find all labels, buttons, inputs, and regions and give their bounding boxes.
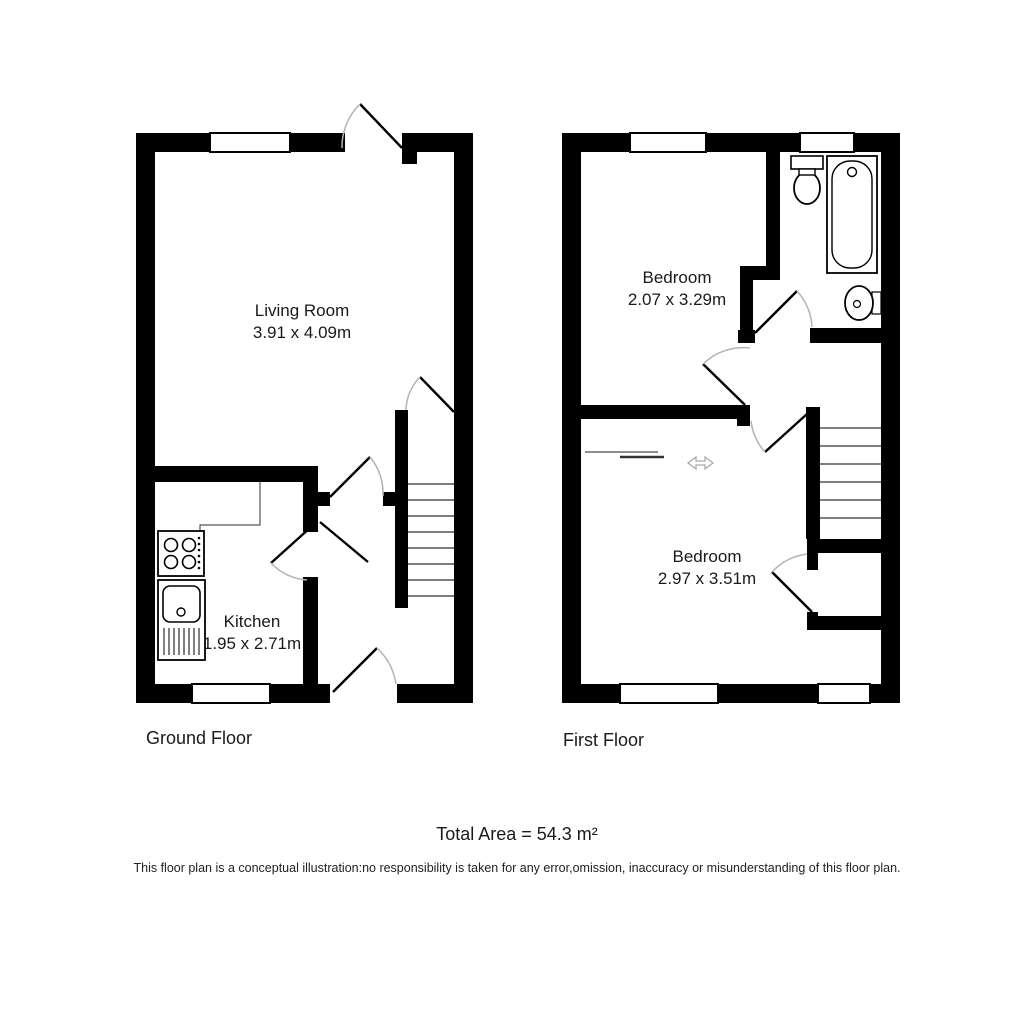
window bbox=[818, 684, 870, 703]
bathroom-door bbox=[755, 291, 812, 333]
wardrobe-icon bbox=[585, 452, 713, 469]
stove-icon bbox=[158, 531, 204, 576]
first-floor-plan bbox=[562, 133, 900, 703]
kitchen-door bbox=[271, 522, 368, 580]
kitchen-counter bbox=[200, 482, 260, 531]
room-name: Bedroom bbox=[658, 546, 756, 568]
room-name: Kitchen bbox=[203, 611, 301, 633]
kitchen-label: Kitchen 1.95 x 2.71m bbox=[203, 611, 301, 655]
slide-arrow-icon bbox=[688, 457, 713, 469]
bedroom1-door bbox=[703, 348, 750, 405]
window bbox=[192, 684, 270, 703]
room-name: Living Room bbox=[253, 300, 351, 322]
stairs-first bbox=[820, 428, 881, 518]
stairs-ground bbox=[408, 484, 454, 596]
basin-icon bbox=[845, 286, 881, 320]
floorplan-page: { "ground_floor": { "label": "Ground Flo… bbox=[0, 0, 1035, 1024]
window bbox=[210, 133, 290, 152]
hallway-door bbox=[330, 457, 383, 497]
back-door bbox=[333, 648, 396, 692]
ground-floor-plan bbox=[136, 104, 473, 703]
room-dimensions: 1.95 x 2.71m bbox=[203, 633, 301, 655]
window bbox=[620, 684, 718, 703]
window bbox=[800, 133, 854, 152]
living-room-label: Living Room 3.91 x 4.09m bbox=[253, 300, 351, 344]
first-floor-label: First Floor bbox=[563, 730, 644, 751]
room-dimensions: 2.07 x 3.29m bbox=[628, 289, 726, 311]
ground-floor-label: Ground Floor bbox=[146, 728, 252, 749]
bath-icon bbox=[827, 156, 877, 273]
room-dimensions: 3.91 x 4.09m bbox=[253, 322, 351, 344]
total-area-label: Total Area = 54.3 m² bbox=[436, 824, 598, 845]
bedroom1-label: Bedroom 2.07 x 3.29m bbox=[628, 267, 726, 311]
bedroom2-door bbox=[751, 414, 807, 452]
kitchen-sink-icon bbox=[158, 580, 205, 660]
disclaimer-text: This floor plan is a conceptual illustra… bbox=[133, 861, 900, 875]
stairs-door bbox=[406, 377, 454, 412]
bedroom2-label: Bedroom 2.97 x 3.51m bbox=[658, 546, 756, 590]
room-dimensions: 2.97 x 3.51m bbox=[658, 568, 756, 590]
front-door bbox=[342, 104, 402, 148]
toilet-icon bbox=[791, 156, 823, 204]
room-name: Bedroom bbox=[628, 267, 726, 289]
closet-door bbox=[772, 554, 812, 612]
window bbox=[630, 133, 706, 152]
